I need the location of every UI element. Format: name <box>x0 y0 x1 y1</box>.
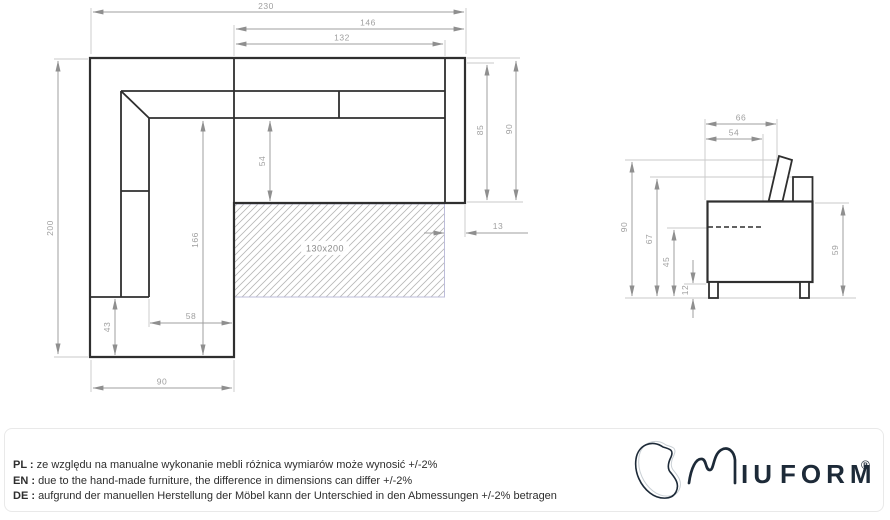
dim-label-90-bottom: 90 <box>157 377 167 387</box>
side-view: 66 54 90 67 45 12 59 <box>619 113 856 319</box>
sofa-technical-drawing: 130x200 230 146 132 200 85 90 13 54 166 … <box>0 0 890 426</box>
note-pl: PL : ze względu na manualne wykonanie me… <box>13 458 557 474</box>
miuform-logo: IU FORM ® <box>627 431 875 509</box>
note-de-sep: : <box>28 490 38 502</box>
dim-label-67: 67 <box>644 234 654 244</box>
note-en-label: EN <box>13 475 28 487</box>
dim-label-66: 66 <box>736 113 746 123</box>
backrest-block <box>793 177 813 201</box>
dim-label-54-seat: 54 <box>257 156 267 166</box>
logo-registered-mark: ® <box>861 458 870 472</box>
dim-label-58: 58 <box>186 311 196 321</box>
note-de-text: aufgrund der manuellen Herstellung der M… <box>38 490 557 502</box>
note-en-text: due to the hand-made furniture, the diff… <box>38 475 412 487</box>
dim-label-85: 85 <box>475 125 485 135</box>
logo-text-iu: IU <box>741 459 777 489</box>
tolerance-notes: PL : ze względu na manualne wykonanie me… <box>13 458 557 505</box>
dim-label-230: 230 <box>258 1 274 11</box>
dim-label-54-side: 54 <box>729 128 739 138</box>
top-view: 130x200 230 146 132 200 85 90 13 54 166 … <box>45 1 528 392</box>
note-en-sep: : <box>28 475 38 487</box>
logo-bean-icon <box>636 443 678 498</box>
headrest-up <box>769 156 792 201</box>
back-leg <box>800 282 809 298</box>
dim-label-13: 13 <box>493 221 503 231</box>
dim-label-45: 45 <box>661 257 671 267</box>
note-en: EN : due to the hand-made furniture, the… <box>13 474 557 490</box>
dim-label-59: 59 <box>830 245 840 255</box>
page: 130x200 230 146 132 200 85 90 13 54 166 … <box>0 0 890 520</box>
note-pl-label: PL <box>13 459 27 471</box>
note-pl-text: ze względu na manualne wykonanie mebli r… <box>37 459 438 471</box>
front-leg <box>709 282 718 298</box>
dim-label-12: 12 <box>680 285 690 295</box>
side-body <box>708 202 813 283</box>
dim-label-146: 146 <box>360 18 376 28</box>
note-pl-sep: : <box>27 459 37 471</box>
dim-label-166: 166 <box>190 232 200 248</box>
dim-label-43: 43 <box>102 322 112 332</box>
logo-m-stroke-icon <box>689 449 735 483</box>
dim-label-132: 132 <box>334 33 350 43</box>
footer-panel: PL : ze względu na manualne wykonanie me… <box>4 428 884 512</box>
dim-label-90-right: 90 <box>504 124 514 134</box>
note-de-label: DE <box>13 490 28 502</box>
note-de: DE : aufgrund der manuellen Herstellung … <box>13 489 557 505</box>
dim-label-200: 200 <box>45 220 55 236</box>
dim-label-90-side: 90 <box>619 222 629 232</box>
mattress-size-label: 130x200 <box>306 244 344 254</box>
